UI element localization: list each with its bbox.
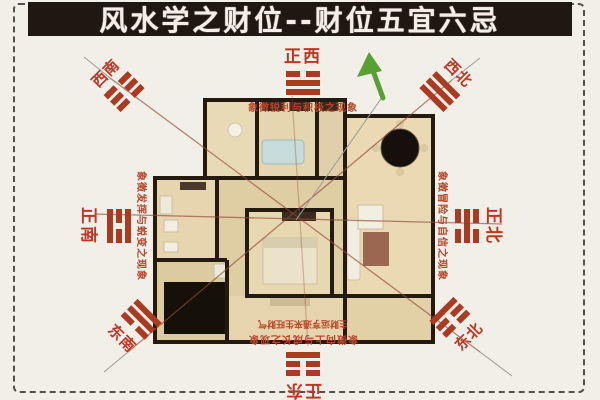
rug (363, 232, 389, 266)
trigram-zhen-icon (286, 352, 320, 376)
trigram-dui-icon (286, 71, 320, 95)
trigram-li-icon (107, 209, 131, 243)
east-description: 象徵向上与成长之现象 (248, 333, 358, 348)
title-bar: 风水学之财位--财位五宜六忌 (28, 2, 572, 36)
trigram-kan-icon (455, 209, 479, 243)
compass-east: 正东 象徵向上与成长之现象 主财运亨通来生旺财气 (220, 318, 386, 400)
desk (160, 196, 172, 214)
balcony-door (270, 298, 310, 306)
direction-east-label: 正东 (284, 380, 322, 400)
round-dining-table (381, 129, 419, 167)
compass-north: 正北 象徵冒险与自信之现象 (436, 161, 508, 291)
side-table (358, 205, 383, 229)
feng-shui-infographic: 风水学之财位--财位五宜六忌 (0, 0, 600, 400)
west-description: 象徵锐利与积极之现象 (248, 99, 358, 114)
page-title: 风水学之财位--财位五宜六忌 (99, 0, 500, 39)
appliance (214, 264, 226, 278)
bathtub (262, 140, 304, 164)
direction-west-label: 正西 (284, 42, 322, 67)
direction-north-label: 正北 (483, 207, 508, 245)
compass-south: 象徵发挥与蜕变之现象 正南 (78, 161, 150, 291)
dresser (282, 212, 316, 221)
south-description: 象徵发挥与蜕变之现象 (135, 171, 150, 281)
east-description-2: 主财运亨通来生旺财气 (258, 318, 348, 331)
north-description: 象徵冒险与自信之现象 (436, 171, 451, 281)
direction-south-label: 正南 (78, 207, 103, 245)
compass-west: 正西 象徵锐利与积极之现象 (220, 42, 386, 114)
washbasin (228, 123, 242, 137)
kitchen-counter (164, 282, 227, 334)
